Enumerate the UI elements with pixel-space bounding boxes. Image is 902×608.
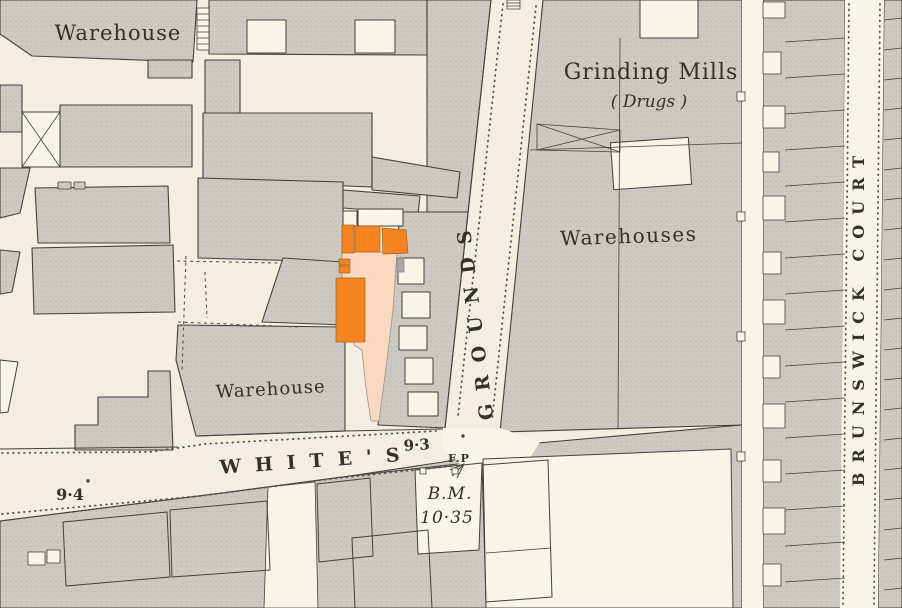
label-spot-height-93: 9·3 bbox=[403, 435, 430, 455]
highlighted-building[interactable] bbox=[336, 278, 365, 342]
highlighted-building[interactable] bbox=[382, 228, 408, 254]
back-yard bbox=[763, 106, 785, 128]
highlighted-building[interactable] bbox=[342, 225, 354, 253]
back-yard bbox=[763, 196, 785, 220]
small-building bbox=[343, 211, 357, 226]
label-grinding-mills: Grinding Mills bbox=[564, 60, 739, 85]
building-block bbox=[35, 186, 170, 243]
alley-gate bbox=[737, 92, 745, 101]
back-yard bbox=[763, 564, 781, 586]
back-yard bbox=[763, 152, 779, 172]
highlighted-outbuilding[interactable] bbox=[397, 258, 404, 272]
benchmark-corner bbox=[452, 468, 458, 474]
back-yard bbox=[763, 508, 785, 534]
spot-height-dot bbox=[461, 434, 464, 437]
cross-braced-plot bbox=[22, 112, 60, 167]
spot-height-dot bbox=[86, 479, 89, 482]
building-block bbox=[60, 105, 192, 167]
back-yard bbox=[763, 52, 781, 74]
alley-gate bbox=[737, 212, 745, 221]
label-warehouse-top: Warehouse bbox=[55, 21, 182, 45]
small-building bbox=[405, 358, 433, 384]
building-block bbox=[203, 113, 372, 187]
benchmark-corner bbox=[420, 468, 426, 474]
building-block bbox=[205, 60, 240, 120]
label-grinding-mills-note: ( Drugs ) bbox=[611, 92, 687, 112]
back-yard bbox=[763, 2, 785, 18]
building-block bbox=[148, 60, 192, 78]
map-svg: Warehouse Grinding Mills ( Drugs ) Wareh… bbox=[0, 0, 902, 608]
highlighted-building[interactable] bbox=[355, 226, 380, 252]
building-block bbox=[198, 178, 343, 262]
yard bbox=[264, 482, 318, 608]
building-block bbox=[32, 245, 175, 314]
small-building bbox=[399, 326, 427, 350]
yard bbox=[247, 20, 286, 53]
small-building bbox=[28, 552, 45, 565]
label-footpath: F.P bbox=[448, 452, 470, 465]
yard bbox=[355, 20, 395, 53]
highlighted-building[interactable] bbox=[339, 266, 350, 273]
building-block bbox=[74, 182, 85, 189]
back-yard bbox=[763, 404, 785, 428]
label-warehouses: Warehouses bbox=[560, 222, 698, 251]
building-block bbox=[58, 182, 71, 189]
highlighted-building[interactable] bbox=[339, 259, 350, 265]
small-building bbox=[47, 550, 60, 563]
yard bbox=[640, 0, 698, 38]
yard-large bbox=[483, 449, 733, 608]
label-street-brunswick-court: BRUNSWICK COURT bbox=[849, 146, 868, 486]
back-yard bbox=[763, 460, 781, 482]
small-building bbox=[358, 209, 403, 226]
back-yard bbox=[763, 300, 785, 324]
small-building bbox=[402, 292, 430, 318]
label-spot-height-94: 9·4 bbox=[56, 485, 84, 504]
label-benchmark-abbr: B.M. bbox=[427, 484, 473, 504]
back-yard bbox=[763, 356, 780, 378]
label-benchmark-value: 10·35 bbox=[420, 508, 474, 528]
back-yard bbox=[763, 252, 781, 274]
alley-gate bbox=[737, 332, 745, 341]
historic-os-map-canvas[interactable]: Warehouse Grinding Mills ( Drugs ) Wareh… bbox=[0, 0, 902, 608]
alley-gate bbox=[737, 452, 745, 461]
building-block bbox=[0, 85, 22, 132]
small-building bbox=[408, 392, 438, 416]
